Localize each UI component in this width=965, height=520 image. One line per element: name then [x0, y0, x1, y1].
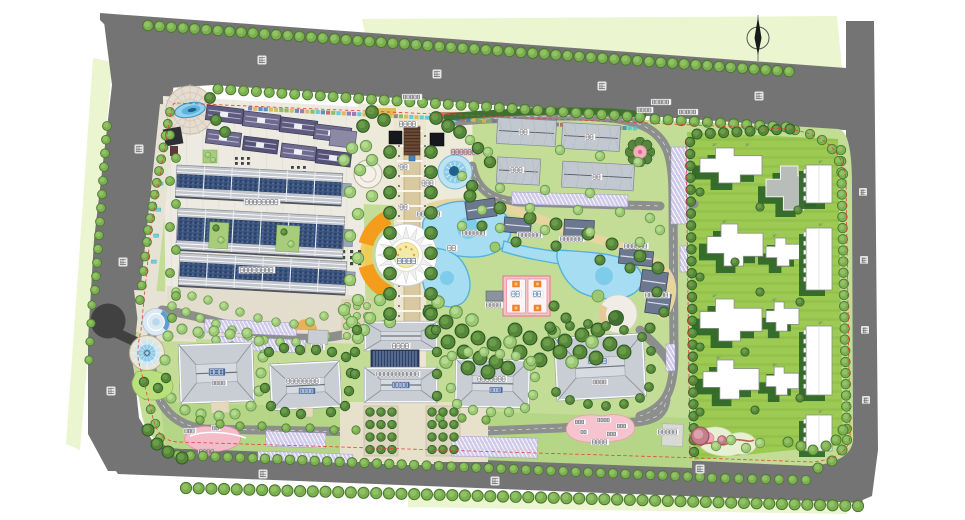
svg-text:1F: 1F — [818, 409, 823, 414]
svg-text:1F: 1F — [712, 293, 717, 298]
svg-text:1F: 1F — [722, 219, 727, 224]
svg-text:1F: 1F — [772, 297, 777, 302]
svg-text:1F: 1F — [818, 320, 823, 325]
svg-text:1F: 1F — [745, 142, 750, 147]
svg-text:1F: 1F — [818, 159, 823, 164]
svg-text:1F: 1F — [772, 233, 777, 238]
svg-text:1F: 1F — [818, 222, 823, 227]
svg-text:1F: 1F — [716, 355, 721, 360]
svg-text:1F: 1F — [712, 142, 717, 147]
svg-text:1F: 1F — [772, 362, 777, 367]
